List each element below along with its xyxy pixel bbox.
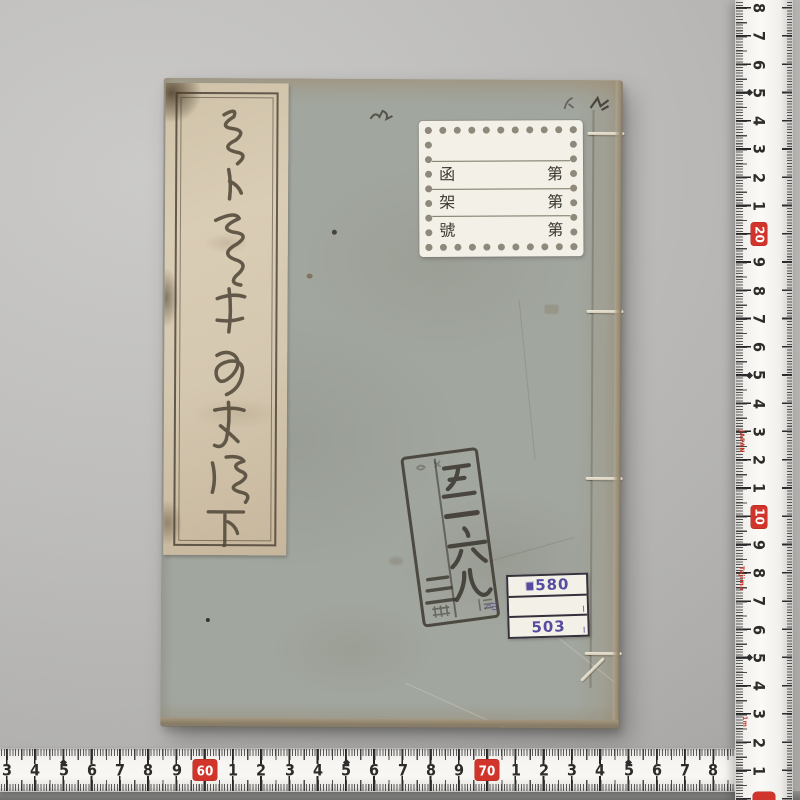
ink-speck xyxy=(206,618,210,622)
ruler-number: 6 xyxy=(753,338,764,357)
ruler-brand-text: JAPAN xyxy=(738,430,745,453)
ruler-number: 1 xyxy=(753,196,764,215)
ruler-number: 3 xyxy=(284,761,295,780)
ruler-number: 7 xyxy=(397,761,408,780)
ink-speck xyxy=(332,230,337,235)
ruler-ticks xyxy=(782,0,792,800)
ruler-brand-text: Tajima xyxy=(738,566,745,591)
call-number-bottom-cell: 503 xyxy=(509,614,588,637)
ruler-number: 8 xyxy=(425,761,436,780)
binding-sew-line xyxy=(590,110,595,688)
photo-scene: 函 第 架 第 號 第 xyxy=(0,0,800,800)
ruler-number: 7 xyxy=(679,761,690,780)
ruler-number: 7 xyxy=(753,309,764,328)
ruler-number: 8 xyxy=(708,761,719,780)
ruler-number: 6 xyxy=(369,761,380,780)
ruler-number: 6 xyxy=(86,761,97,780)
label-field-kan: 函 xyxy=(439,167,455,183)
volume-marker-glyph xyxy=(208,512,243,548)
ink-mark xyxy=(588,94,612,114)
ruler-number: 6 xyxy=(753,55,764,74)
ruler-number: 4 xyxy=(753,112,764,131)
ruler-red-label: 70 xyxy=(475,760,499,781)
ruler-number: 9 xyxy=(753,253,764,272)
ruler-number: 8 xyxy=(753,564,764,583)
book: 函 第 架 第 號 第 xyxy=(160,78,621,728)
label-row-case: 函 第 xyxy=(432,160,570,188)
ruler-number: 2 xyxy=(753,168,764,187)
ruler-number: 3 xyxy=(753,705,764,724)
ruler-number: 5 xyxy=(753,83,764,102)
crease-line xyxy=(519,301,536,460)
ink-mark xyxy=(562,96,576,112)
crease-line xyxy=(483,537,575,564)
ruler-number: 2 xyxy=(753,451,764,470)
ruler-number: 3 xyxy=(566,761,577,780)
book-bottom-edge xyxy=(160,718,618,729)
title-calligraphy xyxy=(163,97,288,548)
call-number-top-cell: 580 xyxy=(508,575,587,596)
stray-mark xyxy=(582,606,584,612)
ruler-number: 5 xyxy=(753,366,764,385)
ruler-number: 1 xyxy=(753,761,764,780)
ruler-number: 3 xyxy=(753,140,764,159)
ruler-number: 4 xyxy=(595,761,606,780)
ruler-number: 4 xyxy=(312,761,323,780)
ruler-red-label: 10 xyxy=(751,505,767,528)
stain-smudge xyxy=(389,557,403,565)
stamp-volume-note xyxy=(424,576,457,617)
ruler-number: 8 xyxy=(753,0,764,18)
ruler-number: 9 xyxy=(171,761,182,780)
label-dai: 第 xyxy=(547,222,563,238)
stain-speck xyxy=(307,274,313,279)
ruler-number: 8 xyxy=(143,761,154,780)
ruler-red-label: 20 xyxy=(751,223,767,246)
ruler-number: 1 xyxy=(227,761,238,780)
ruler-vertical: 876543212098765432110987654321JAPANTajim… xyxy=(735,0,793,800)
ink-mark xyxy=(368,107,394,125)
ruler-number: 9 xyxy=(453,761,464,780)
ruler-number: 3 xyxy=(753,422,764,441)
ruler-number: 3 xyxy=(1,761,12,780)
purple-stamp-trace xyxy=(483,600,499,612)
ruler-number: 5 xyxy=(753,648,764,667)
ruler-number: 6 xyxy=(753,620,764,639)
call-number-label: 580 503 xyxy=(506,573,590,639)
ruler-number: 2 xyxy=(753,733,764,752)
label-row-number: 號 第 xyxy=(432,215,570,243)
ruler-number: 1 xyxy=(753,479,764,498)
call-number-top: 580 xyxy=(535,576,570,595)
ruler-number: 2 xyxy=(538,761,549,780)
ruler-number: 4 xyxy=(753,394,764,413)
ruler-number: 4 xyxy=(30,761,41,780)
ruler-end-marker xyxy=(753,792,775,800)
faint-stamp-trace xyxy=(544,305,558,314)
label-prefix-mark-icon xyxy=(525,581,533,590)
label-field-go: 號 xyxy=(439,222,455,238)
stamp-faint-top-marks xyxy=(416,461,441,470)
library-shelf-label: 函 第 架 第 號 第 xyxy=(419,120,584,257)
call-number-bottom: 503 xyxy=(531,617,566,636)
ruler-number: 4 xyxy=(753,677,764,696)
ruler-brand-text: 1m xyxy=(741,716,748,727)
call-number-middle-cell xyxy=(509,593,588,616)
label-row-blank xyxy=(432,133,570,160)
ruler-horizontal: 3456789601234567897012345678 xyxy=(0,748,746,792)
label-dai: 第 xyxy=(547,166,563,182)
table-edge-shadow xyxy=(0,791,800,800)
ruler-red-label: 60 xyxy=(193,760,217,781)
ruler-number: 6 xyxy=(651,761,662,780)
title-slip xyxy=(163,83,288,556)
label-ornament-border: 函 第 架 第 號 第 xyxy=(425,126,578,251)
ruler-number: 7 xyxy=(114,761,125,780)
label-dai: 第 xyxy=(547,194,563,210)
label-field-ka: 架 xyxy=(439,195,455,211)
ruler-number: 1 xyxy=(510,761,521,780)
ruler-number: 2 xyxy=(256,761,267,780)
stray-mark xyxy=(583,627,585,633)
ruler-number: 7 xyxy=(753,592,764,611)
ruler-number: 7 xyxy=(753,27,764,46)
label-row-shelf: 架 第 xyxy=(432,188,570,216)
ruler-number: 9 xyxy=(753,535,764,554)
ruler-number: 8 xyxy=(753,281,764,300)
